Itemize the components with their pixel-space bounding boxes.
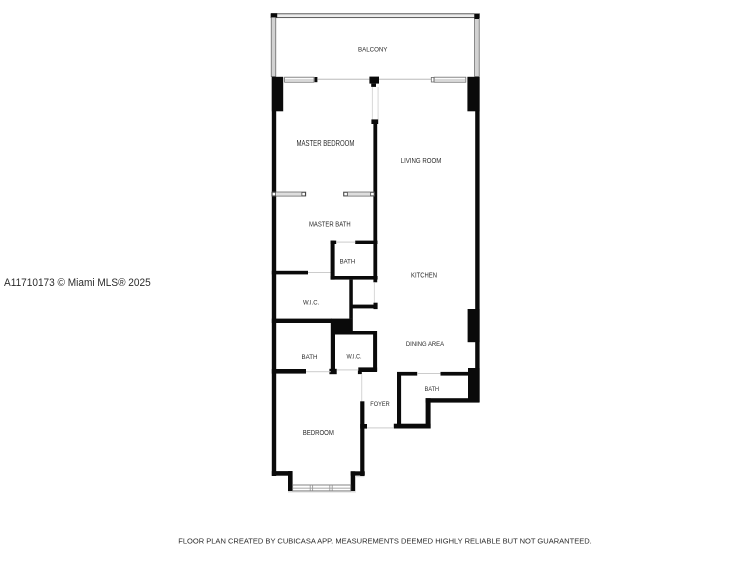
svg-text:FOYER: FOYER [370,401,389,408]
svg-text:A11710173 © Miami MLS® 2025: A11710173 © Miami MLS® 2025 [4,277,151,289]
svg-text:W.I.C.: W.I.C. [303,299,320,306]
svg-text:BATH: BATH [425,386,440,393]
svg-text:BALCONY: BALCONY [358,47,387,54]
svg-text:MASTER BATH: MASTER BATH [309,222,351,229]
svg-text:LIVING ROOM: LIVING ROOM [401,158,442,165]
svg-text:BEDROOM: BEDROOM [303,430,334,437]
svg-text:BATH: BATH [340,259,356,266]
svg-text:MASTER BEDROOM: MASTER BEDROOM [296,139,354,148]
svg-text:FLOOR PLAN CREATED BY CUBICASA: FLOOR PLAN CREATED BY CUBICASA APP. MEAS… [178,536,592,545]
svg-text:DINING AREA: DINING AREA [406,341,445,348]
svg-text:BATH: BATH [302,354,318,361]
svg-text:W.I.C.: W.I.C. [346,354,361,361]
svg-text:KITCHEN: KITCHEN [411,271,437,280]
